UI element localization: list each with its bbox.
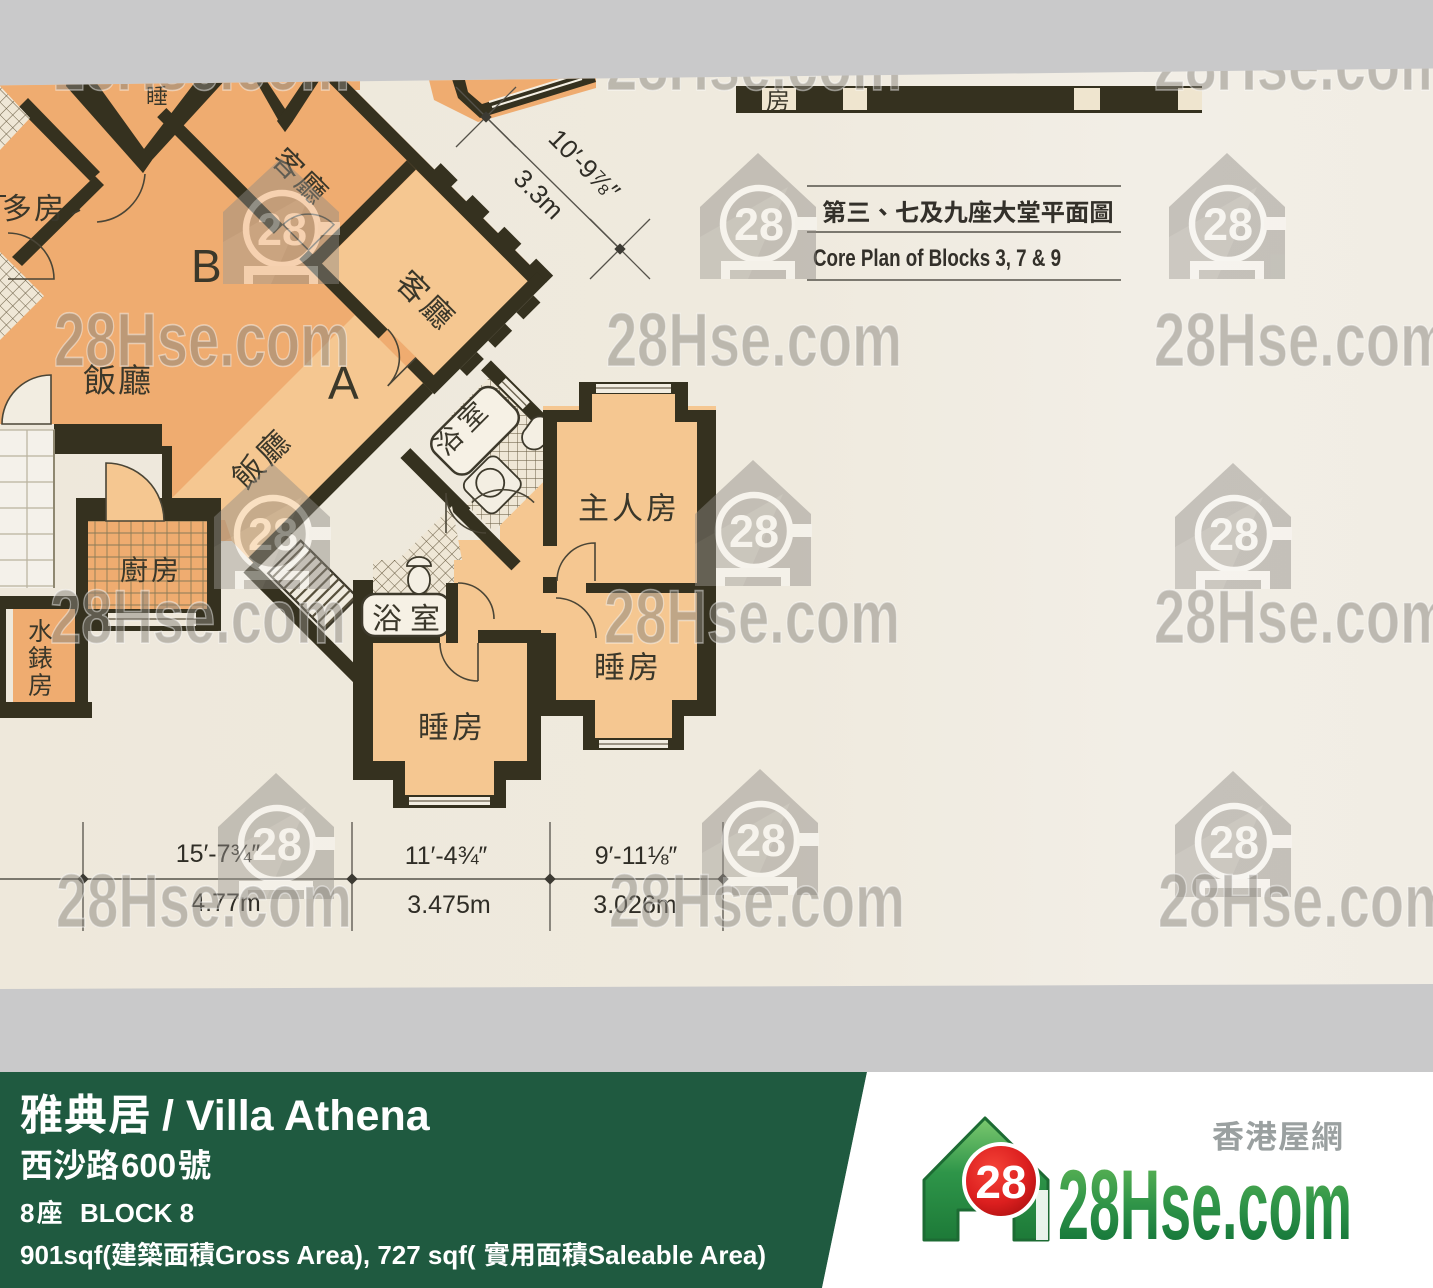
svg-text:28Hse.com: 28Hse.com bbox=[1154, 298, 1433, 383]
svg-text:28Hse.com: 28Hse.com bbox=[50, 575, 346, 660]
svg-text:28Hse.com: 28Hse.com bbox=[606, 298, 902, 383]
svg-text:28Hse.com: 28Hse.com bbox=[1058, 1149, 1352, 1260]
svg-text:28Hse.com: 28Hse.com bbox=[56, 859, 352, 944]
svg-text:Saleable Area): Saleable Area) bbox=[588, 1240, 766, 1270]
svg-text:28Hse.com: 28Hse.com bbox=[1154, 575, 1433, 660]
svg-text:11′-4¾″: 11′-4¾″ bbox=[405, 842, 488, 870]
svg-text:28: 28 bbox=[975, 1156, 1026, 1208]
svg-text:BLOCK 8: BLOCK 8 bbox=[80, 1198, 194, 1228]
svg-text:28Hse.com: 28Hse.com bbox=[609, 859, 905, 944]
svg-text:901sqf(: 901sqf( bbox=[20, 1240, 111, 1270]
svg-text:600: 600 bbox=[121, 1147, 176, 1184]
svg-text:28Hse.com: 28Hse.com bbox=[54, 298, 350, 383]
svg-text:28Hse.com: 28Hse.com bbox=[1158, 859, 1433, 944]
svg-text:8: 8 bbox=[20, 1198, 34, 1228]
svg-text:3.475m: 3.475m bbox=[407, 891, 490, 919]
svg-text:28Hse.com: 28Hse.com bbox=[604, 575, 900, 660]
svg-text:Gross Area), 727 sqf(: Gross Area), 727 sqf( bbox=[215, 1240, 476, 1270]
svg-text:Core Plan of Blocks 3, 7 & 9: Core Plan of Blocks 3, 7 & 9 bbox=[813, 245, 1061, 272]
svg-text:/ Villa Athena: / Villa Athena bbox=[162, 1092, 431, 1140]
svg-text:B: B bbox=[191, 240, 222, 292]
